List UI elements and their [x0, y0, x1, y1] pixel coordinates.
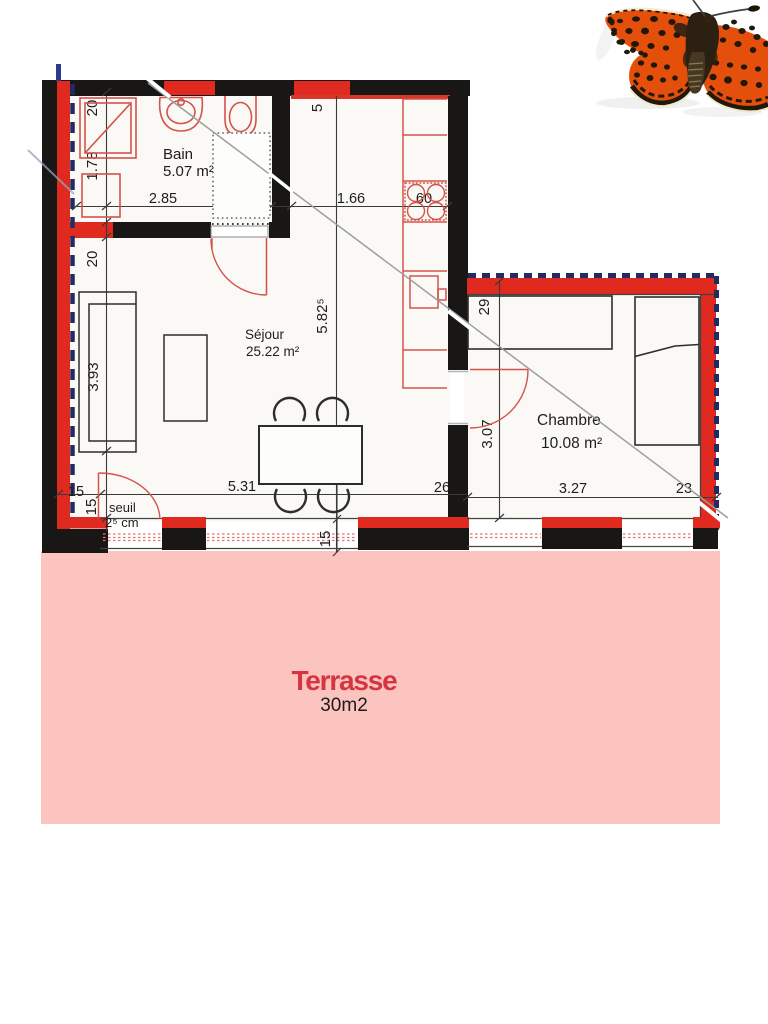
svg-text:20: 20	[84, 251, 101, 268]
svg-text:5.31: 5.31	[228, 479, 256, 495]
svg-text:1.78: 1.78	[84, 151, 101, 180]
svg-text:25.22 m²: 25.22 m²	[246, 344, 300, 359]
svg-text:20: 20	[84, 100, 101, 117]
svg-text:10.08 m²: 10.08 m²	[541, 435, 602, 452]
svg-text:Séjour: Séjour	[245, 327, 285, 342]
svg-text:3.93: 3.93	[85, 362, 102, 391]
svg-text:Terrasse: Terrasse	[291, 665, 397, 696]
svg-text:26: 26	[434, 480, 450, 496]
svg-text:29: 29	[476, 299, 493, 316]
svg-text:30m2: 30m2	[320, 695, 368, 716]
svg-text:5.82⁵: 5.82⁵	[314, 298, 331, 333]
svg-text:15: 15	[83, 499, 100, 516]
svg-text:5.07 m²: 5.07 m²	[163, 163, 214, 180]
svg-text:15: 15	[317, 531, 334, 548]
svg-text:5: 5	[309, 104, 326, 112]
svg-text:Bain: Bain	[163, 146, 193, 163]
svg-text:1.66: 1.66	[337, 191, 365, 207]
svg-text:seuil: seuil	[109, 500, 136, 515]
svg-text:2.85: 2.85	[149, 191, 177, 207]
svg-text:15: 15	[68, 484, 84, 500]
svg-text:3.27: 3.27	[559, 481, 587, 497]
svg-text:2⁵ cm: 2⁵ cm	[105, 515, 139, 530]
